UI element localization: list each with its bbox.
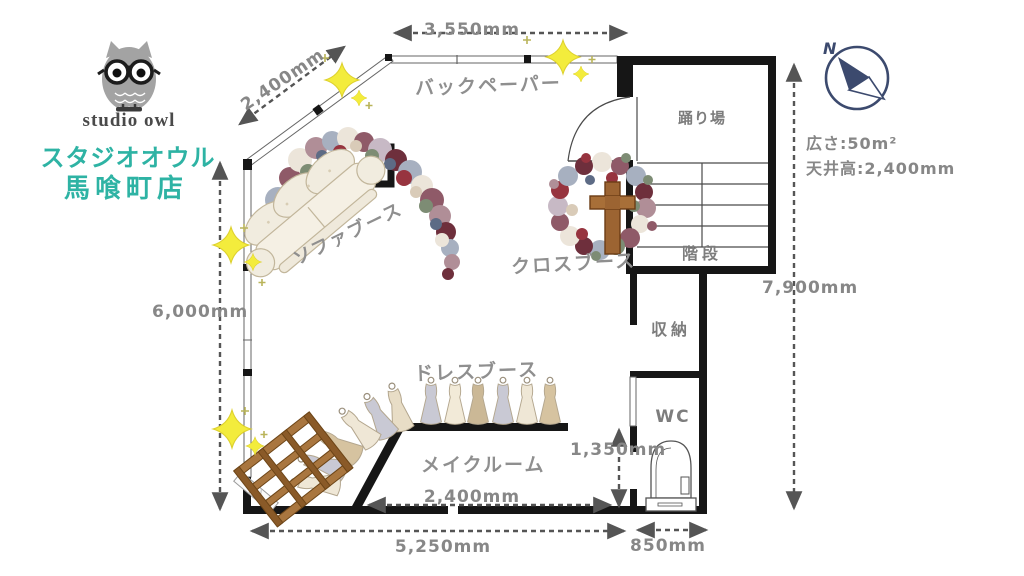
info-floor-area: 広さ:50m² <box>806 130 897 154</box>
dimension-bottom-width: 5,250mm <box>395 537 491 557</box>
logo-wordmark: studio owl <box>83 110 176 132</box>
dimension-top-width: 3,550mm <box>424 20 520 40</box>
floorplan-page: studio owl スタジオオウル 馬喰町店 3,550mm 2,400mm … <box>0 0 1024 576</box>
dimension-makeup-width: 2,400mm <box>424 487 520 507</box>
store-name-line2: 馬喰町店 <box>64 168 188 205</box>
dimension-wc-width: 850mm <box>630 536 706 556</box>
owl-logo-icon <box>98 41 160 112</box>
label-storage: 収納 <box>651 316 691 340</box>
label-dress-booth: ドレスブース <box>414 355 540 386</box>
label-landing: 踊り場 <box>678 107 726 128</box>
dimension-left-height: 6,000mm <box>152 302 248 322</box>
wc-sliding-door <box>630 377 636 426</box>
label-stairs: 階段 <box>682 240 722 264</box>
door-arc <box>568 97 630 161</box>
label-wc: WC <box>655 407 690 427</box>
label-makeup-room: メイクルーム <box>421 450 545 477</box>
dimension-wc-inner: 1,350mm <box>570 440 666 460</box>
compass-north-label: N <box>823 39 836 58</box>
dimension-right-height: 7,900mm <box>762 278 858 298</box>
label-backpaper-booth: バックペーパー <box>415 68 563 100</box>
info-ceiling-height: 天井高:2,400mm <box>806 155 955 179</box>
